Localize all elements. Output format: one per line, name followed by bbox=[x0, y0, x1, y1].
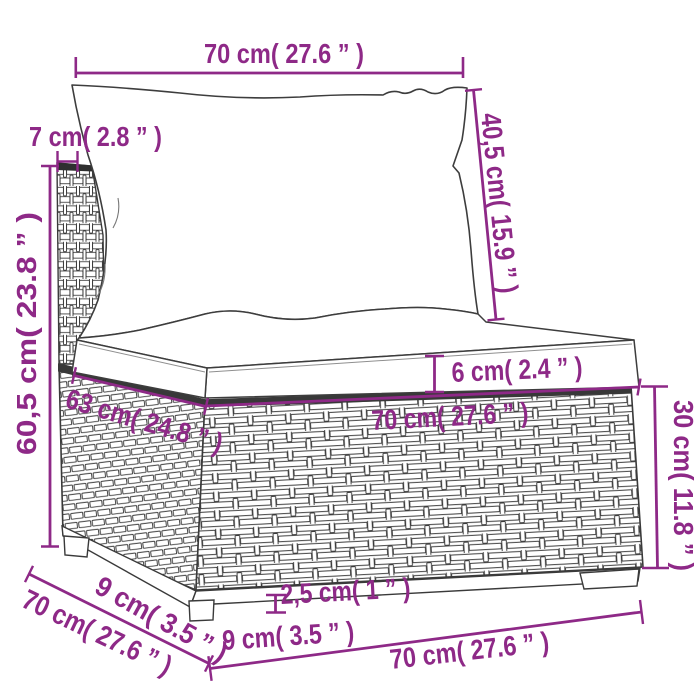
svg-text:6 cm( 2.4 ” ): 6 cm( 2.4 ” ) bbox=[451, 351, 583, 388]
svg-text:70 cm( 27.6 ” ): 70 cm( 27.6 ” ) bbox=[204, 38, 364, 69]
svg-text:2,5 cm( 1 ” ): 2,5 cm( 1 ” ) bbox=[280, 572, 411, 610]
svg-text:7 cm( 2.8 ” ): 7 cm( 2.8 ” ) bbox=[29, 121, 162, 152]
svg-text:40,5 cm( 15.9 ” ): 40,5 cm( 15.9 ” ) bbox=[475, 112, 524, 295]
svg-text:9 cm( 3.5 ” ): 9 cm( 3.5 ” ) bbox=[221, 616, 355, 656]
svg-text:60,5 cm( 23.8 ” ): 60,5 cm( 23.8 ” ) bbox=[11, 212, 42, 455]
svg-text:30 cm( 11.8 ” ): 30 cm( 11.8 ” ) bbox=[668, 400, 699, 571]
